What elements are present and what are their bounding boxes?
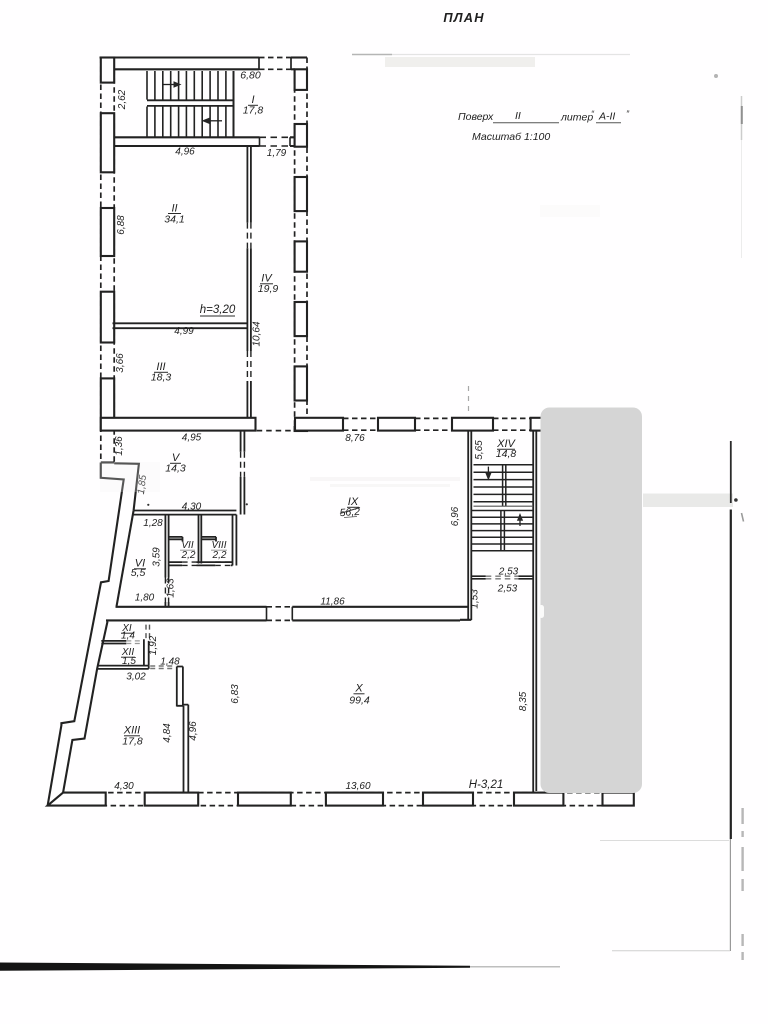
svg-text:1,28: 1,28 <box>143 518 163 529</box>
svg-text:2,2: 2,2 <box>212 550 227 561</box>
svg-text:1,53: 1,53 <box>470 589 481 609</box>
svg-text:1,79: 1,79 <box>267 148 287 159</box>
svg-text:99,4: 99,4 <box>349 695 370 707</box>
svg-text:1,92: 1,92 <box>148 635 159 655</box>
svg-text:6,96: 6,96 <box>450 506 461 526</box>
svg-text:8,35: 8,35 <box>518 691 529 711</box>
svg-text:Масштаб 1:100: Масштаб 1:100 <box>472 131 550 143</box>
svg-text:II: II <box>515 110 521 122</box>
svg-text:4,96: 4,96 <box>188 721 199 741</box>
svg-text:1,36: 1,36 <box>114 436 125 456</box>
svg-text:34,1: 34,1 <box>164 214 184 226</box>
svg-text:3,02: 3,02 <box>126 672 146 683</box>
svg-text:4,84: 4,84 <box>162 723 173 743</box>
svg-text:14,3: 14,3 <box>165 463 186 475</box>
svg-text:“: “ <box>591 109 595 119</box>
svg-text:2,2: 2,2 <box>181 550 196 561</box>
svg-text:3,59: 3,59 <box>152 547 163 567</box>
svg-text:А-ІІ: А-ІІ <box>598 111 615 123</box>
svg-text:19,9: 19,9 <box>258 283 279 295</box>
svg-text:11,86: 11,86 <box>320 597 345 608</box>
svg-text:4,30: 4,30 <box>114 781 134 792</box>
svg-text:13,60: 13,60 <box>345 781 370 792</box>
svg-text:2,62: 2,62 <box>117 89 128 110</box>
svg-text:X: X <box>354 683 363 695</box>
svg-text:1,4: 1,4 <box>121 631 135 642</box>
svg-text:литер: литер <box>560 112 593 124</box>
svg-text:4,95: 4,95 <box>182 433 202 444</box>
svg-text:6,80: 6,80 <box>240 70 261 82</box>
svg-text:6,83: 6,83 <box>230 684 241 704</box>
svg-text:1,80: 1,80 <box>135 593 155 604</box>
svg-text:”: ” <box>626 109 630 119</box>
svg-text:18,3: 18,3 <box>151 372 172 384</box>
svg-text:3,66: 3,66 <box>115 353 126 373</box>
svg-text:8,76: 8,76 <box>345 433 365 444</box>
svg-text:4,30: 4,30 <box>182 502 202 513</box>
svg-text:6,88: 6,88 <box>116 215 127 235</box>
svg-text:4,99: 4,99 <box>174 326 194 337</box>
svg-text:1,63: 1,63 <box>166 578 177 598</box>
svg-text:2,53: 2,53 <box>498 567 519 578</box>
svg-text:17,8: 17,8 <box>122 736 143 748</box>
svg-text:17,8: 17,8 <box>243 105 264 117</box>
svg-text:1,48: 1,48 <box>160 657 180 668</box>
svg-text:h=3,20: h=3,20 <box>200 304 236 316</box>
svg-text:5,65: 5,65 <box>474 440 485 460</box>
svg-text:10,64: 10,64 <box>252 321 263 346</box>
svg-text:2,53: 2,53 <box>497 584 518 595</box>
svg-text:ПЛАН: ПЛАН <box>443 10 484 25</box>
svg-text:Поверх: Поверх <box>458 111 494 123</box>
svg-text:4,96: 4,96 <box>175 147 195 158</box>
svg-text:Н-3,21: Н-3,21 <box>469 779 504 791</box>
